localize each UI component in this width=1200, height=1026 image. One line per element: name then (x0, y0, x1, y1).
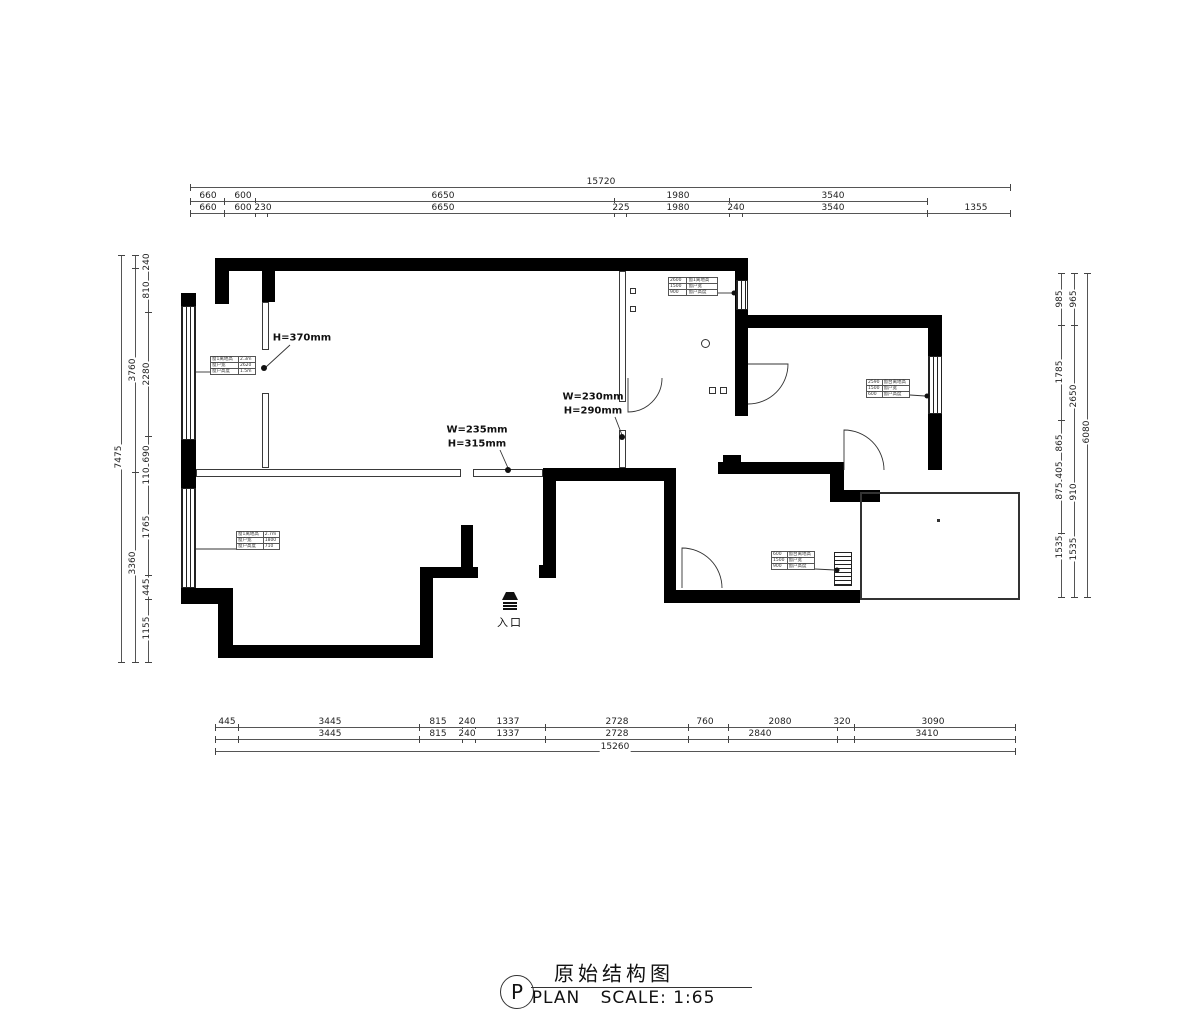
dim-label: 320 (832, 717, 851, 727)
dim-label: 660 (198, 191, 217, 201)
dim-label: 1980 (666, 203, 691, 213)
table-cell: 710 (263, 544, 279, 550)
dim-tick (215, 724, 216, 731)
dim-tick (1071, 273, 1078, 274)
dim-tick (419, 736, 420, 743)
dim-label: 225 (611, 203, 630, 213)
dim-tick (132, 268, 139, 269)
dim-tick (854, 736, 855, 743)
dim-label: 405 (1055, 460, 1065, 479)
table-cell: 900 (669, 290, 687, 296)
dim-tick (1058, 420, 1065, 421)
dim-label: 6080 (1082, 420, 1092, 445)
opening2-width-annotation: W=230mm (562, 392, 623, 403)
dim-tick (145, 436, 152, 437)
dim-tick (132, 255, 139, 256)
dim-label: 965 (1069, 289, 1079, 308)
dim-tick (1010, 184, 1011, 191)
dim-tick (1084, 597, 1091, 598)
dim-label: 600 (233, 203, 252, 213)
dim-tick (1071, 325, 1078, 326)
dim-label: 1980 (666, 191, 691, 201)
dim-label: 3090 (921, 717, 946, 727)
table-cell: 600 (867, 392, 883, 398)
dim-label: 2650 (1069, 384, 1079, 409)
dim-tick (224, 198, 225, 205)
dim-label: 3360 (128, 551, 138, 576)
dimension-line (190, 213, 1010, 214)
dim-label: 3540 (821, 191, 846, 201)
table-cell: 窗台离地高 (882, 380, 909, 386)
dim-label: 15720 (586, 177, 617, 187)
dim-tick (224, 210, 225, 217)
dim-tick (190, 198, 191, 205)
dim-label: 815 (428, 717, 447, 727)
dim-tick (1071, 597, 1078, 598)
dimension-line (215, 727, 1015, 728)
dim-label: 1535 (1055, 535, 1065, 560)
dim-label: 760 (695, 717, 714, 727)
dim-label: 2728 (605, 729, 630, 739)
dim-tick (1058, 597, 1065, 598)
dim-label: 1355 (964, 203, 989, 213)
dim-label: 600 (233, 191, 252, 201)
window-info-table: 窗1离地高2.3m 窗户宽2620 窗户高度1.5m (210, 356, 256, 375)
window-info-table: 600窗台离地高 1500窗户宽 900窗户高度 (771, 551, 815, 570)
dim-tick (927, 198, 928, 205)
dim-tick (190, 210, 191, 217)
dim-label: 6650 (431, 191, 456, 201)
dim-label: 3760 (128, 358, 138, 383)
dimension-line (135, 255, 136, 662)
dim-label: 240 (142, 252, 152, 271)
window-info-table: 2600窗1离地高 1500窗户宽 900窗户高度 (668, 277, 718, 296)
entry-label: 入口 (497, 614, 523, 630)
dim-tick (927, 210, 928, 217)
table-cell: 窗户高度 (687, 290, 718, 296)
dim-label: 240 (457, 717, 476, 727)
table-cell: 1.5m (238, 369, 255, 375)
dim-label: 3540 (821, 203, 846, 213)
dim-label: 3410 (915, 729, 940, 739)
dim-label: 1155 (142, 616, 152, 641)
drawing-title: 原始结构图 (554, 958, 674, 987)
plan-symbol-circle: P (500, 975, 534, 1009)
dimension-line (190, 187, 1010, 188)
dim-label: 875 (1055, 481, 1065, 500)
dim-tick (190, 184, 191, 191)
dim-tick (837, 736, 838, 743)
table-cell: 窗户高度 (787, 564, 814, 570)
dim-tick (1015, 724, 1016, 731)
dim-tick (419, 724, 420, 731)
dim-label: 230 (253, 203, 272, 213)
dim-tick (728, 736, 729, 743)
dim-label: 2280 (142, 362, 152, 387)
dim-label: 445 (142, 577, 152, 596)
opening2-height-annotation: H=290mm (564, 406, 622, 417)
dim-label: 3445 (318, 729, 343, 739)
scale-label: SCALE: 1:65 (601, 988, 716, 1008)
dim-label: 2840 (748, 729, 773, 739)
dim-label: 1785 (1055, 360, 1065, 385)
beam-height-annotation: H=370mm (273, 333, 331, 344)
table-cell: 900 (772, 564, 788, 570)
dim-label: 240 (726, 203, 745, 213)
leader-and-door-overlay (0, 0, 1200, 1026)
dim-label: 6650 (431, 203, 456, 213)
dim-tick (688, 736, 689, 743)
floorplan-sheet: H=370mm W=235mm H=315mm W=230mm H=290mm … (0, 0, 1200, 1026)
table-cell: 窗户高度 (211, 369, 239, 375)
dim-tick (145, 599, 152, 600)
dim-tick (1015, 748, 1016, 755)
dimension-line (215, 739, 1015, 740)
dim-label: 240 (457, 729, 476, 739)
opening1-width-annotation: W=235mm (446, 425, 507, 436)
dim-tick (118, 662, 125, 663)
dim-tick (118, 255, 125, 256)
dim-label: 910 (1069, 482, 1079, 501)
dim-label: 1337 (496, 729, 521, 739)
dim-label: 660 (198, 203, 217, 213)
dim-label: 2728 (605, 717, 630, 727)
dim-tick (145, 662, 152, 663)
dimension-line (190, 201, 927, 202)
window-info-table: 窗1离地高2.7m 窗户宽1800 窗户高度710 (236, 531, 280, 550)
dim-label: 445 (217, 717, 236, 727)
dim-tick (132, 472, 139, 473)
dim-label: 110 (142, 466, 152, 485)
dim-tick (132, 662, 139, 663)
table-cell: 窗户高度 (237, 544, 264, 550)
dim-label: 865 (1055, 433, 1065, 452)
dim-tick (145, 312, 152, 313)
dim-tick (145, 575, 152, 576)
dim-tick (728, 724, 729, 731)
dim-tick (215, 748, 216, 755)
dim-label: 3445 (318, 717, 343, 727)
dim-label: 1765 (142, 515, 152, 540)
dim-tick (1058, 273, 1065, 274)
window-info-table: 2590窗台离地高 1500窗户宽 600窗户高度 (866, 379, 910, 398)
dim-tick (238, 736, 239, 743)
dim-tick (1015, 736, 1016, 743)
plan-label: PLAN (532, 988, 580, 1008)
opening1-height-annotation: H=315mm (448, 439, 506, 450)
dim-tick (238, 724, 239, 731)
dim-label: 1337 (496, 717, 521, 727)
dim-label: 2080 (768, 717, 793, 727)
dim-label: 15260 (600, 742, 631, 752)
dim-label: 690 (142, 444, 152, 463)
dim-tick (1058, 325, 1065, 326)
dim-label: 1535 (1069, 537, 1079, 562)
dim-tick (545, 724, 546, 731)
plan-symbol-letter: P (511, 980, 523, 1004)
dim-label: 810 (142, 280, 152, 299)
dim-tick (215, 736, 216, 743)
dim-tick (1084, 273, 1091, 274)
dim-label: 815 (428, 729, 447, 739)
table-cell: 窗台离地高 (787, 552, 814, 558)
dim-tick (854, 724, 855, 731)
dim-tick (688, 724, 689, 731)
dim-tick (1010, 210, 1011, 217)
dim-label: 985 (1055, 289, 1065, 308)
table-cell: 窗户高度 (882, 392, 909, 398)
dim-tick (545, 736, 546, 743)
dim-label: 7475 (114, 445, 124, 470)
